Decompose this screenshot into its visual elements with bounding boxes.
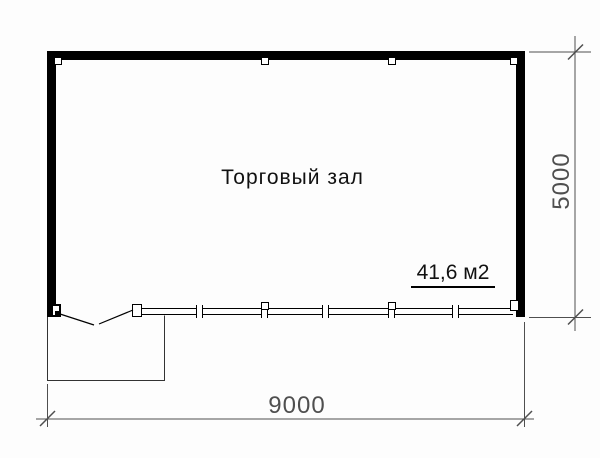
floor-plan-drawing: Торговый зал 41,6 м2 9000 5000 [0,0,600,458]
porch-outline [48,316,165,381]
room-area-label: 41,6 м2 [411,261,495,288]
room-label: Торговый зал [180,166,405,190]
door-leaf-right-line [99,310,133,324]
dimension-height-label: 5000 [548,131,574,231]
dimension-width-label: 9000 [247,392,347,420]
plan-linework [0,0,600,458]
door-leaf-left-line [60,314,94,325]
